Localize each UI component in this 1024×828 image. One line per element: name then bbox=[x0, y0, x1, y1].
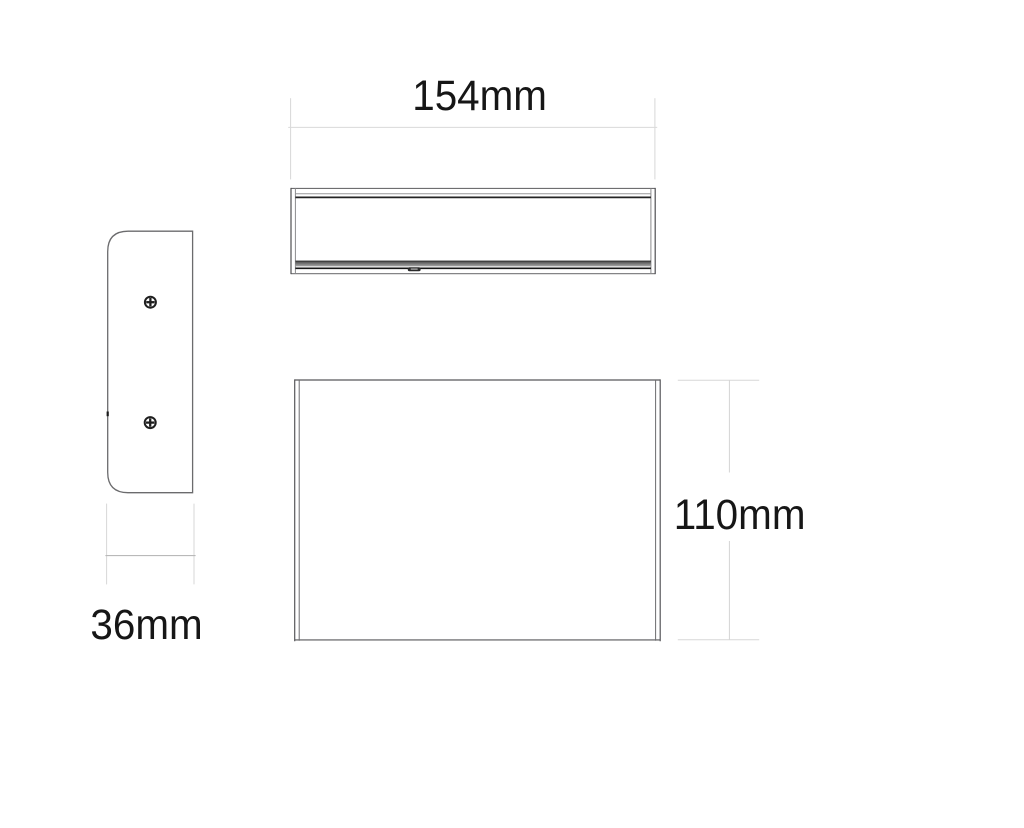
svg-text:110mm: 110mm bbox=[674, 490, 806, 538]
svg-text:36mm: 36mm bbox=[90, 600, 202, 648]
svg-text:154mm: 154mm bbox=[412, 71, 547, 119]
